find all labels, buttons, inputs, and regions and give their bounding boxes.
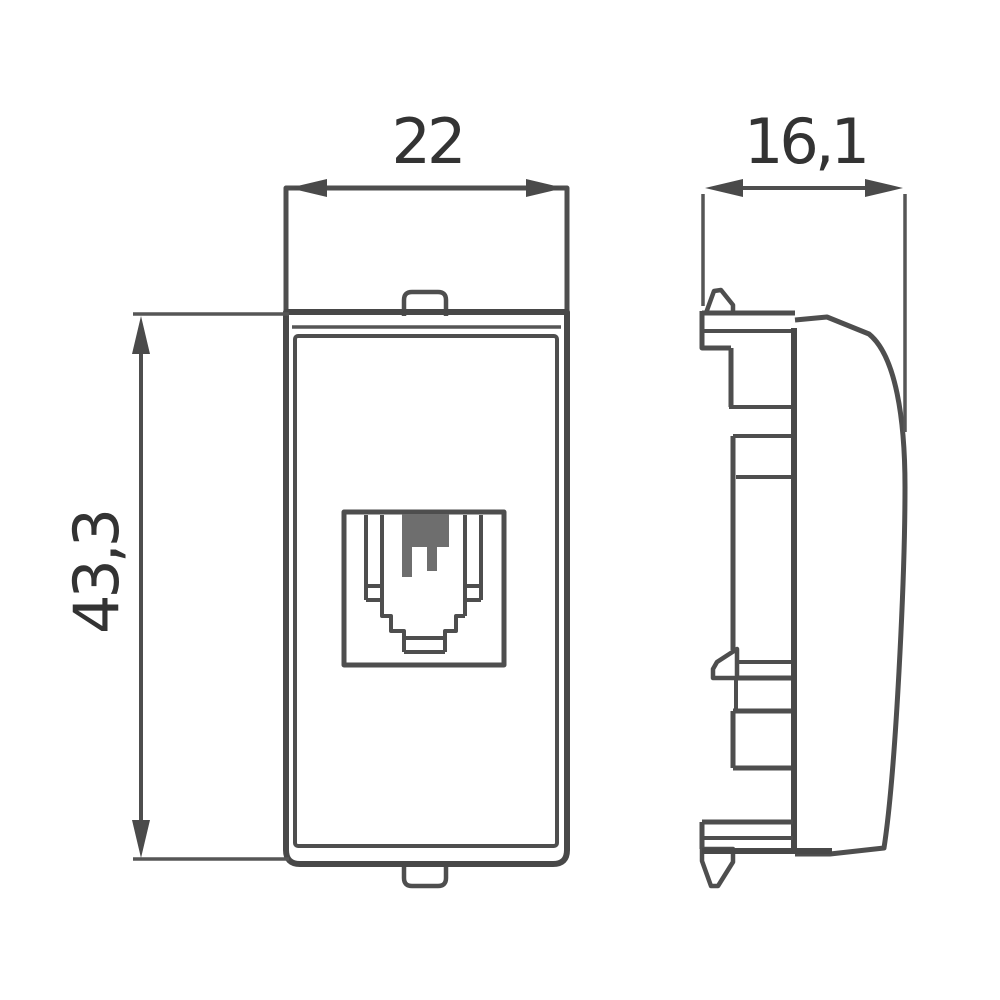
bottom-clip-icon [702,849,733,886]
dimension-height-extension-lines [133,314,289,859]
dimension-height-label: 43,3 [60,512,133,634]
middle-clip-icon [713,649,737,678]
technical-drawing: 22 43,3 [0,0,1000,1000]
module-face [295,336,557,846]
module-body-outline [286,312,567,864]
front-view: 22 43,3 [60,105,567,886]
dimension-width-label: 22 [392,105,463,178]
dimension-width: 22 [289,105,564,197]
arrow-up-icon [132,316,150,354]
dimension-depth-label: 16,1 [744,105,866,178]
rj11-contacts [402,514,449,577]
rj11-socket-icon [344,512,504,665]
arrow-left-icon [289,179,327,197]
arrow-down-icon [132,820,150,858]
drawing-canvas: 22 43,3 [0,0,1000,1000]
block-3 [733,711,793,768]
bottom-arm [702,822,793,849]
top-clip-icon [706,290,733,313]
cover-profile [795,317,905,854]
dimension-height: 43,3 [60,314,289,859]
arrow-right-icon [526,179,564,197]
arrow-right-icon [865,179,903,197]
side-view: 16,1 [702,105,905,886]
arrow-left-icon [705,179,743,197]
